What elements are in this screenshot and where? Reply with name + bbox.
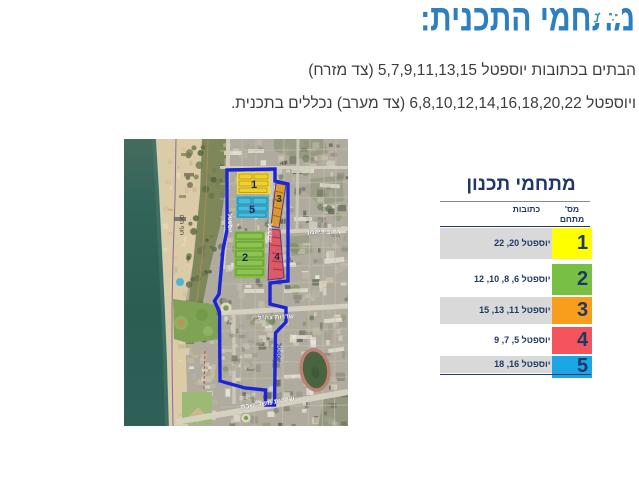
svg-text:יוספטל: יוספטל [275,343,283,362]
svg-text:4: 4 [274,252,280,263]
svg-text:5: 5 [249,204,255,216]
svg-text:3: 3 [276,194,282,205]
svg-text:2: 2 [242,252,248,264]
svg-text:רחוב ליהמן: רחוב ליהמן [308,228,341,236]
svg-text:1: 1 [251,179,257,191]
svg-text:יוספטל: יוספטל [266,223,274,242]
svg-text:חוף הים: חוף הים [178,215,184,235]
svg-text:יוספטל: יוספטל [226,213,234,232]
